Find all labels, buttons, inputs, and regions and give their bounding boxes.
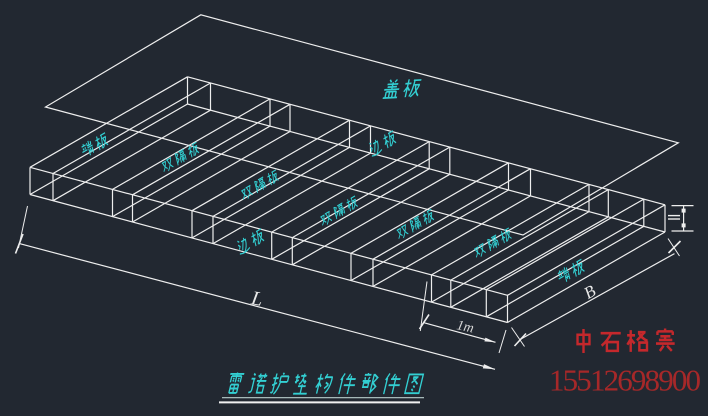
svg-text:15512698900: 15512698900 bbox=[549, 363, 701, 398]
